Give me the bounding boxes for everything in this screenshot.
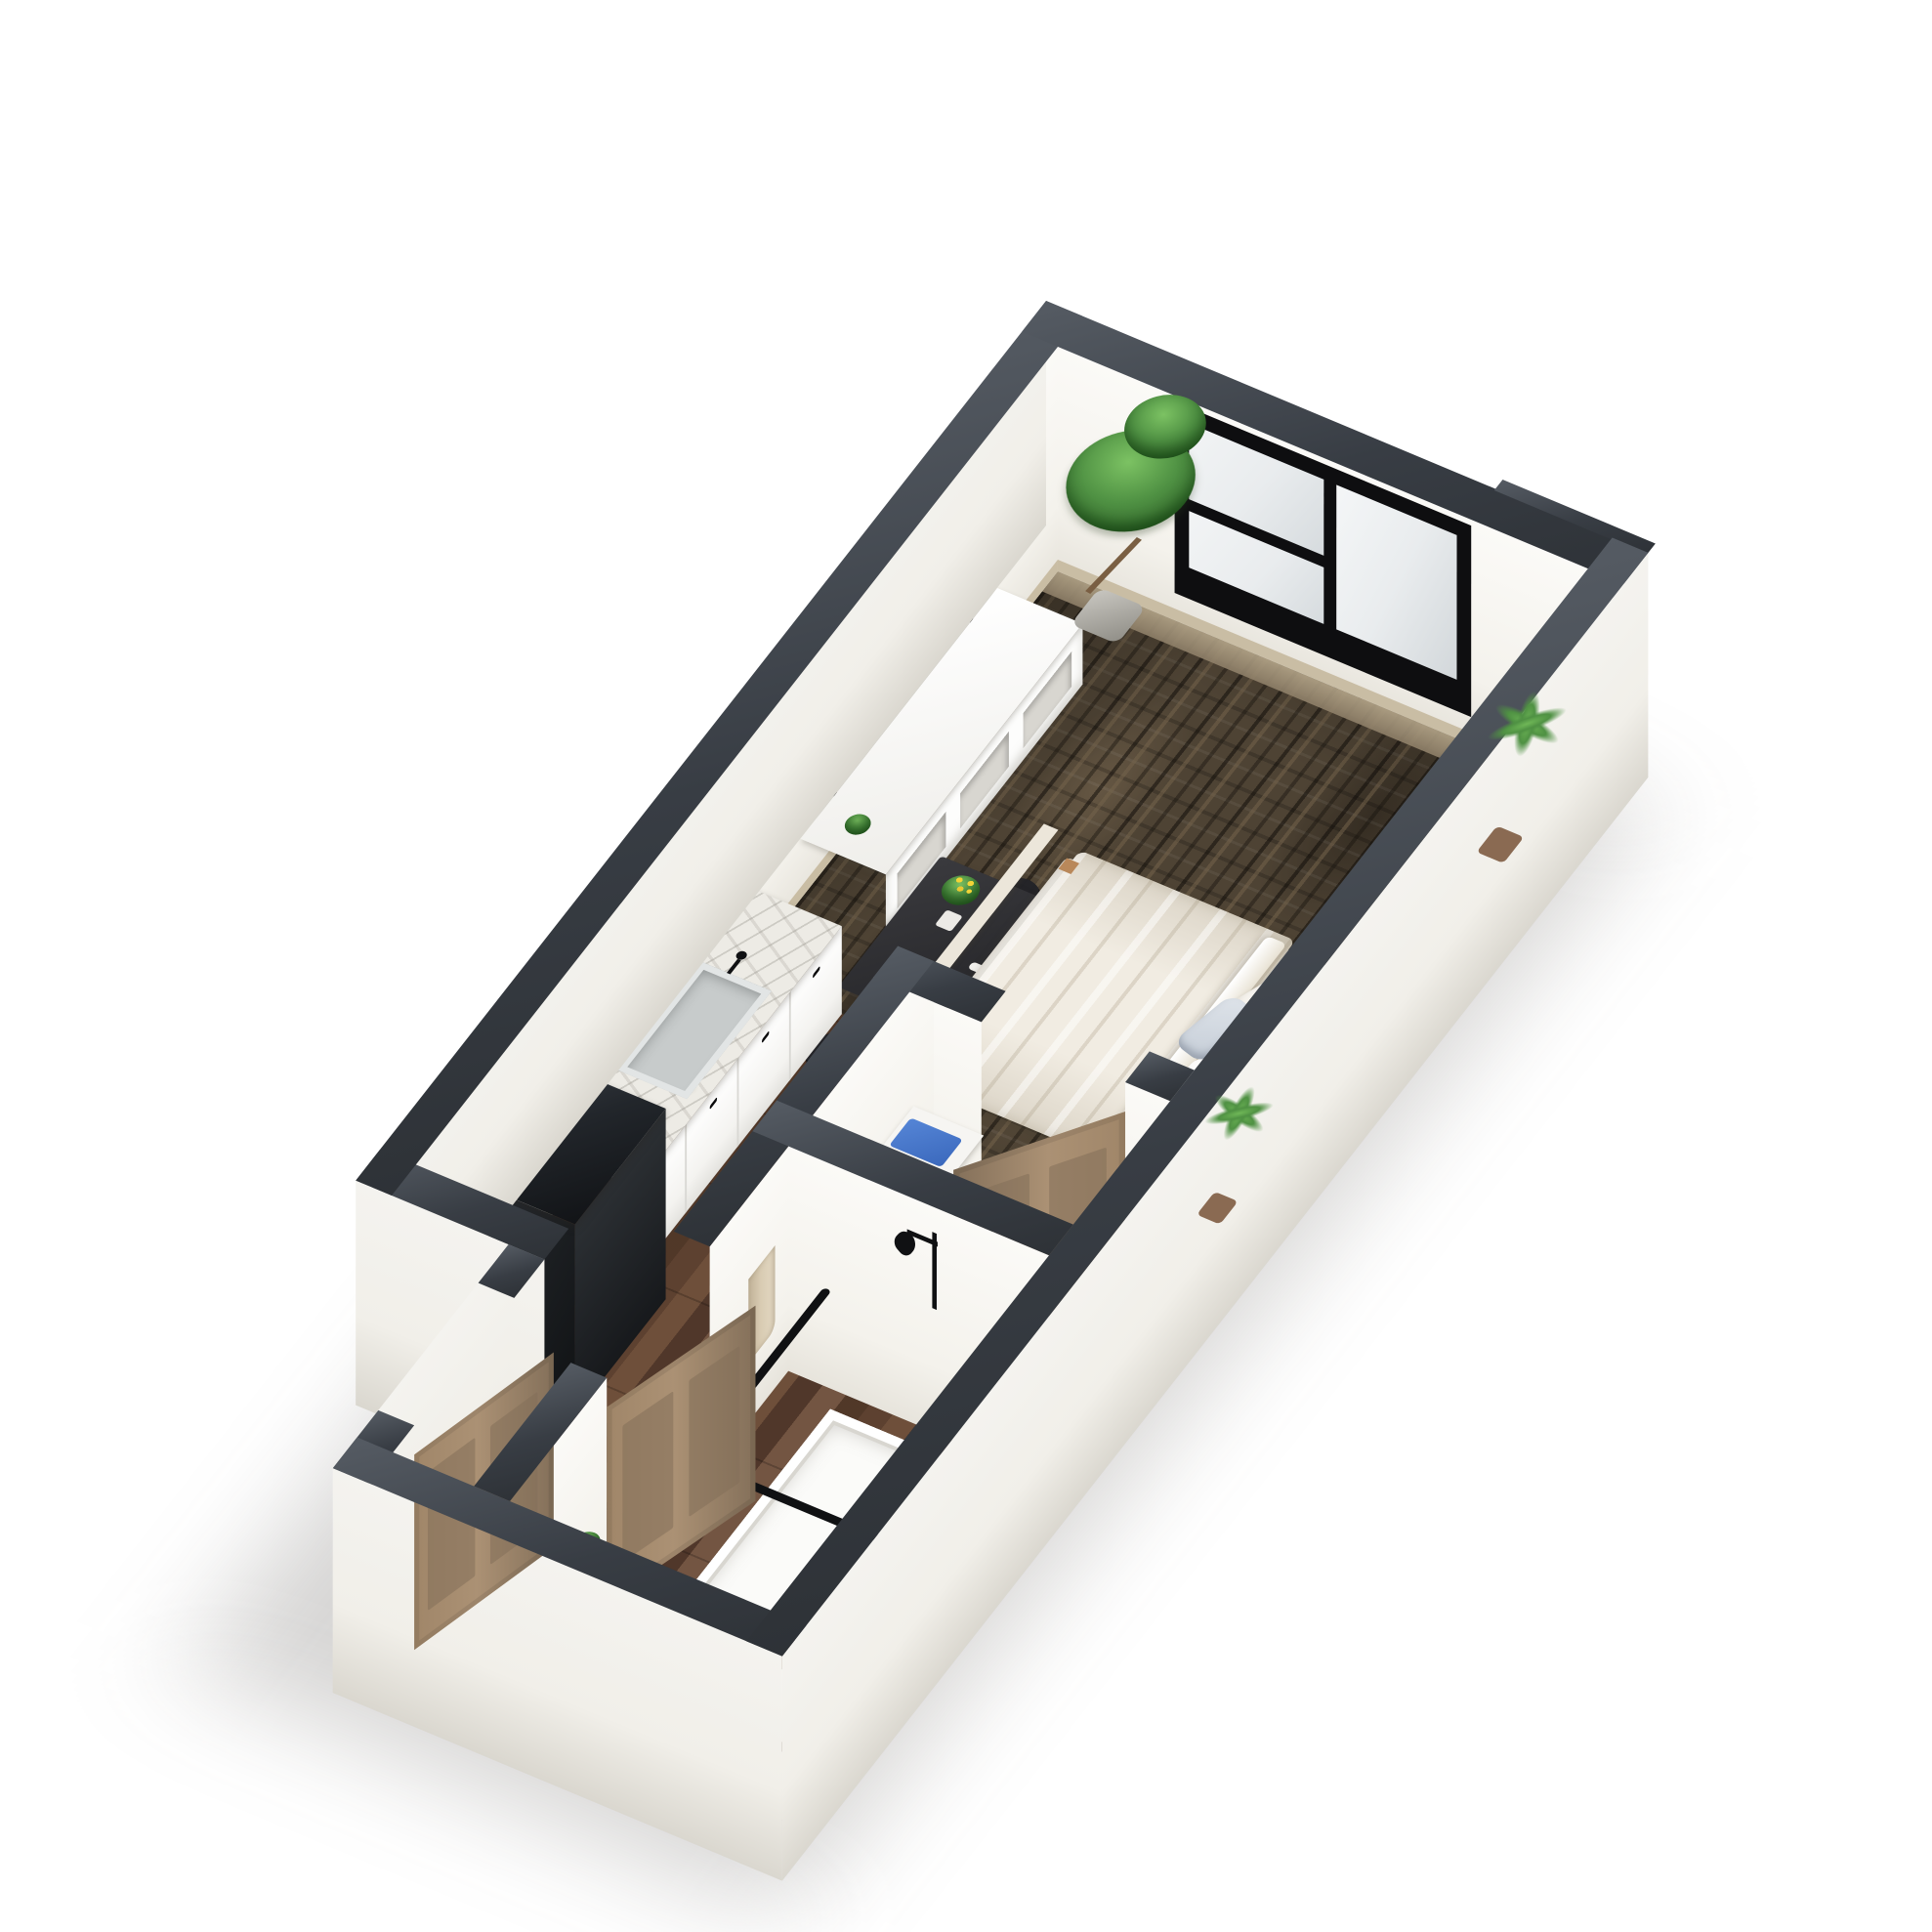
page: { "app": { "title": "3D studio apartment… xyxy=(0,0,1932,1932)
cabinet-seam xyxy=(789,990,791,1080)
cabinet-handle xyxy=(813,966,819,979)
cabinet-handle xyxy=(710,1097,717,1110)
window-pane-right xyxy=(1336,484,1456,680)
cabinet-handle xyxy=(762,1030,769,1043)
cabinet-seam xyxy=(685,1123,687,1213)
cabinet-seam xyxy=(737,1057,739,1147)
